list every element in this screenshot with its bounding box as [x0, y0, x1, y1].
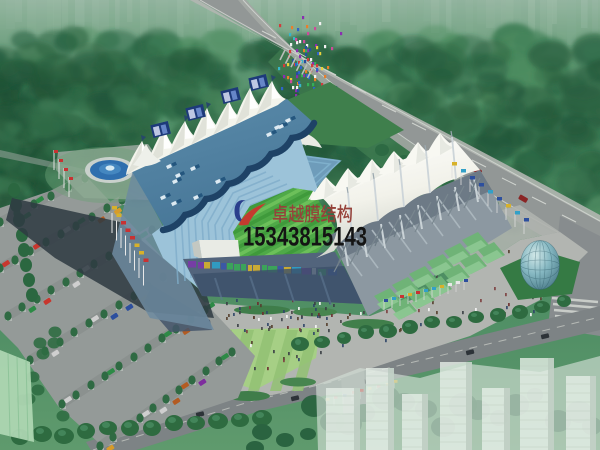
svg-text:15343815143: 15343815143	[243, 222, 367, 252]
